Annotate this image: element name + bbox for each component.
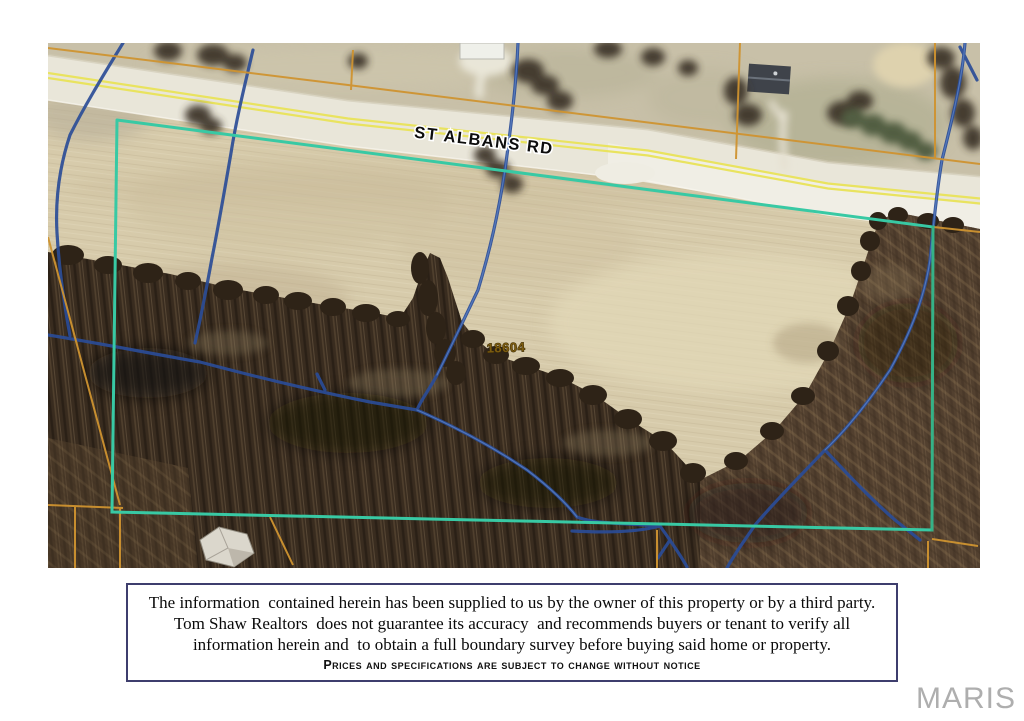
aerial-photo: ST ALBANS RD 18604: [48, 43, 980, 568]
listing-image: ST ALBANS RD 18604 The information conta…: [0, 0, 1024, 721]
dark-roof-house: [747, 64, 791, 95]
maris-watermark: MARIS: [916, 682, 1016, 716]
disclaimer-line-3: information herein and to obtain a full …: [128, 634, 896, 655]
disclaimer-box: The information contained herein has bee…: [126, 583, 898, 682]
parcel-number-label: 18604: [486, 339, 525, 355]
disclaimer-line-1: The information contained herein has bee…: [128, 592, 896, 613]
disclaimer-line-2: Tom Shaw Realtors does not guarantee its…: [128, 613, 896, 634]
disclaimer-line-4: Prices and specifications are subject to…: [128, 658, 896, 672]
white-house: [460, 43, 504, 59]
